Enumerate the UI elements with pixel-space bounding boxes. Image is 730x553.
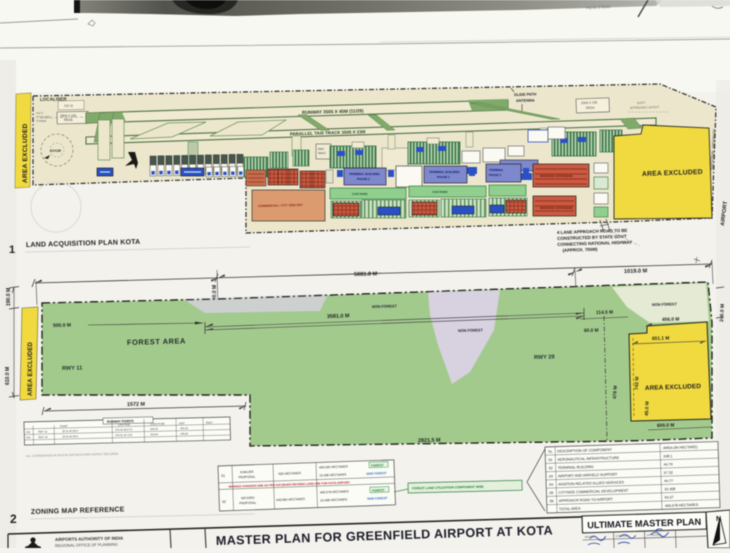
svg-text:06: 06: [550, 499, 554, 503]
svg-text:500 HECTARES: 500 HECTARES: [278, 471, 301, 476]
svg-text:FOREST: FOREST: [372, 488, 385, 492]
svg-text:500.0 M: 500.0 M: [53, 322, 71, 329]
svg-text:LATITUDE: LATITUDE: [118, 423, 130, 426]
svg-text:DIST: DIST: [179, 422, 185, 425]
svg-text:45.0 M: 45.0 M: [644, 401, 651, 416]
svg-text:57.32: 57.32: [664, 471, 673, 475]
svg-text:GLIDE PATH: GLIDE PATH: [514, 92, 537, 97]
svg-text:1572 M: 1572 M: [127, 402, 146, 408]
svg-text:295.80: 295.80: [180, 432, 188, 435]
svg-text:PHASE 1: PHASE 1: [437, 175, 450, 179]
svg-text:NON FOREST: NON FOREST: [458, 328, 484, 333]
svg-text:NON FOREST: NON FOREST: [652, 302, 678, 307]
svg-text:RWY 11: RWY 11: [62, 365, 82, 372]
svg-text:44.77: 44.77: [664, 479, 673, 483]
svg-text:190.0 M: 190.0 M: [6, 288, 12, 306]
svg-text:075 49 45.27 E: 075 49 45.27 E: [115, 428, 132, 431]
svg-text:114.5 M: 114.5 M: [596, 310, 613, 316]
svg-text:075 51 30.72 E: 075 51 30.72 E: [115, 434, 132, 437]
svg-text:456.0 M: 456.0 M: [662, 317, 680, 323]
svg-text:25 09 46.05 N: 25 09 46.05 N: [62, 435, 78, 438]
svg-text:NON FOREST: NON FOREST: [367, 496, 388, 501]
svg-text:60.0 M: 60.0 M: [584, 328, 599, 334]
svg-text:33.408: 33.408: [664, 487, 675, 491]
svg-text:ANTENNA: ANTENNA: [516, 99, 535, 103]
svg-text:25 10 40.38 N: 25 10 40.38 N: [62, 430, 78, 433]
svg-text:TERMINAL: TERMINAL: [489, 168, 504, 172]
svg-text:RESERVE EXPANSION: RESERVE EXPANSION: [540, 206, 573, 210]
svg-text:EARLIER: EARLIER: [240, 470, 254, 474]
svg-text:742 M: 742 M: [634, 377, 640, 391]
svg-text:02: 02: [222, 500, 226, 504]
svg-text:002: 002: [26, 436, 31, 439]
svg-text:651.1 M: 651.1 M: [652, 336, 670, 342]
svg-text:246.0 M: 246.0 M: [719, 304, 726, 322]
svg-text:2821.5 M: 2821.5 M: [418, 438, 441, 444]
svg-text:SHLD: SHLD: [318, 151, 325, 155]
svg-text:304.90: 304.90: [150, 433, 158, 436]
svg-text:3581.0 M: 3581.0 M: [327, 313, 350, 320]
svg-text:mg dc 2-3040: mg dc 2-3040: [586, 4, 611, 10]
svg-text:TERMINAL BUILDING: TERMINAL BUILDING: [349, 172, 380, 176]
svg-text:ELEV: ELEV: [206, 421, 213, 424]
svg-text:1: 1: [9, 244, 15, 256]
svg-text:AREA EXCLUDED: AREA EXCLUDED: [28, 341, 34, 396]
svg-text:PROPOSAL: PROPOSAL: [238, 475, 255, 480]
svg-text:CAR PARK: CAR PARK: [352, 192, 368, 196]
svg-text:TERMINAL BUILDING: TERMINAL BUILDING: [429, 170, 460, 174]
svg-text:296.43: 296.43: [180, 427, 188, 430]
svg-text:RESA: RESA: [586, 106, 596, 110]
svg-text:GOVT: GOVT: [637, 101, 646, 105]
svg-text:REVISED: REVISED: [241, 496, 255, 500]
svg-text:01: 01: [221, 474, 225, 478]
svg-text:RWY 11: RWY 11: [38, 430, 48, 433]
svg-text:LOCALISER: LOCALISER: [40, 96, 67, 102]
svg-text:248.1: 248.1: [663, 454, 672, 458]
svg-text:1019.0 M: 1019.0 M: [624, 268, 648, 275]
svg-text:FOREST: FOREST: [371, 463, 384, 467]
svg-text:FOREST AREA: FOREST AREA: [127, 336, 186, 347]
svg-text:APPROVED: APPROVED: [647, 533, 662, 537]
svg-text:LONGITUDE: LONGITUDE: [150, 423, 165, 426]
svg-text:476 M: 476 M: [612, 385, 619, 399]
svg-text:600.0 M: 600.0 M: [657, 423, 675, 429]
svg-text:PROPOSAL: PROPOSAL: [239, 501, 256, 506]
svg-text:RWY 29: RWY 29: [534, 354, 555, 361]
svg-text:SL: SL: [548, 450, 553, 454]
svg-text:01: 01: [548, 458, 552, 462]
svg-text:TOWER: TOWER: [36, 119, 46, 123]
svg-text:5081.8 M: 5081.8 M: [354, 271, 378, 278]
svg-text:04.27: 04.27: [665, 495, 674, 499]
svg-text:2500 X 150: 2500 X 150: [581, 100, 598, 105]
svg-text:240 M: 240 M: [64, 104, 73, 108]
svg-text:610.0 M: 610.0 M: [5, 367, 11, 385]
svg-text:DVOR: DVOR: [50, 149, 61, 153]
svg-text:RESERVE EXPANSION: RESERVE EXPANSION: [540, 174, 573, 178]
svg-text:2: 2: [10, 512, 17, 526]
svg-text:02: 02: [549, 466, 553, 470]
svg-text:04: 04: [549, 483, 553, 487]
svg-text:03: 03: [549, 474, 553, 478]
svg-text:001: 001: [26, 431, 31, 434]
svg-text:RWY 29: RWY 29: [38, 436, 48, 439]
svg-text:NON FOREST: NON FOREST: [366, 471, 387, 476]
svg-text:POINT: POINT: [60, 425, 68, 428]
svg-text:NON FOREST: NON FOREST: [372, 304, 398, 309]
svg-text:CAR PARK: CAR PARK: [432, 190, 448, 194]
svg-text:TOTAL AREA: TOTAL AREA: [559, 507, 581, 512]
svg-text:PHASE 3: PHASE 3: [489, 173, 501, 177]
svg-text:PHASE 2: PHASE 2: [357, 177, 370, 181]
svg-text:RESA: RESA: [64, 118, 74, 122]
svg-text:304.90: 304.90: [150, 428, 158, 431]
svg-text:AREA EXCLUDED: AREA EXCLUDED: [22, 123, 29, 183]
svg-text:44.79: 44.79: [664, 462, 673, 466]
svg-text:05: 05: [549, 491, 553, 495]
